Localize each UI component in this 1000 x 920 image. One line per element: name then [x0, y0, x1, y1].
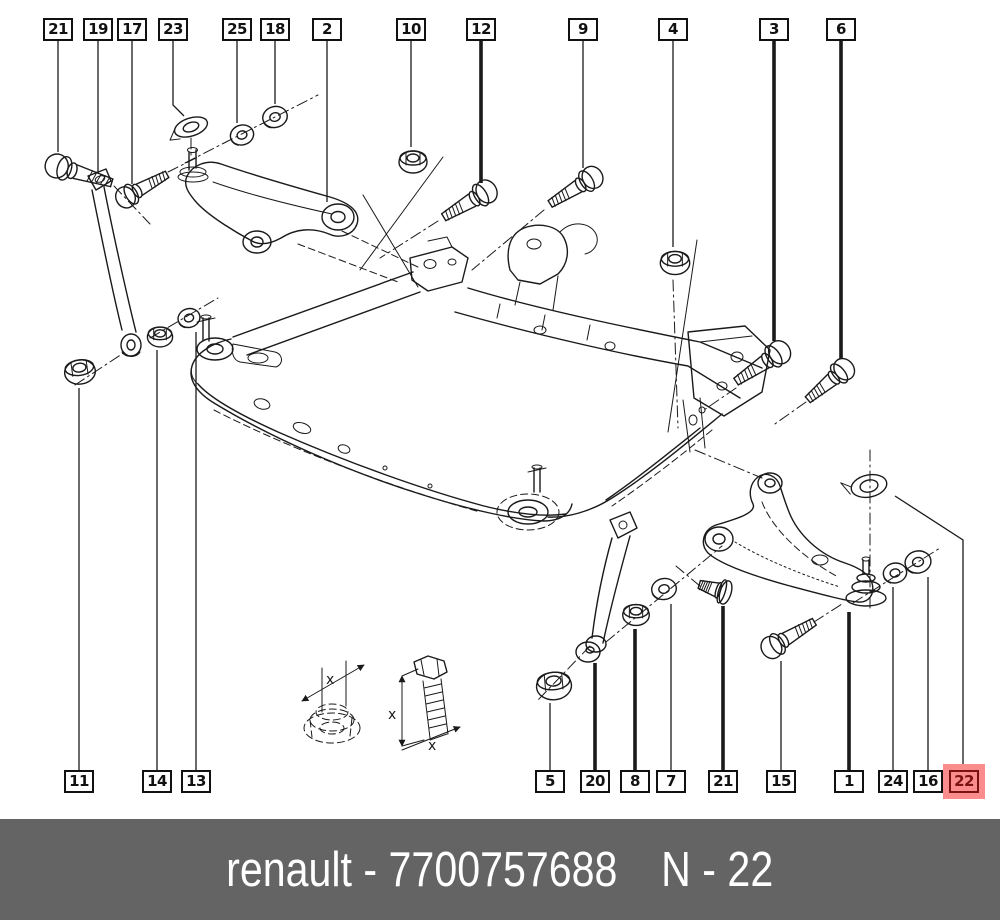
nut-8-part	[623, 605, 650, 626]
washer-16-part	[903, 549, 933, 576]
callout-top-18[interactable]: 18	[260, 18, 290, 41]
callout-bottom-24[interactable]: 24	[878, 770, 908, 793]
washer-25-part	[228, 122, 256, 147]
callout-bottom-5[interactable]: 5	[535, 770, 565, 793]
bolt-21-bottom-part	[696, 573, 735, 606]
tie-bar	[88, 169, 141, 357]
callout-bottom-14[interactable]: 14	[142, 770, 172, 793]
callout-top-3[interactable]: 3	[759, 18, 789, 41]
bolt-15-part	[757, 612, 820, 662]
footer-text: renault - 7700757688 N - 22	[226, 842, 773, 898]
callout-top-6[interactable]: 6	[826, 18, 856, 41]
parts-diagram-page: x x x	[0, 0, 1000, 920]
nut-10-part	[399, 151, 427, 173]
assembly-axes	[75, 95, 940, 700]
callout-top-4[interactable]: 4	[658, 18, 688, 41]
callout-top-25[interactable]: 25	[222, 18, 252, 41]
footer-part-reference: renault - 7700757688	[226, 842, 617, 898]
dimension-label-x: x	[428, 738, 436, 754]
washer-7-part	[650, 577, 678, 602]
callout-bottom-1[interactable]: 1	[834, 770, 864, 793]
dimension-label-x: x	[326, 672, 334, 688]
callout-bottom-15[interactable]: 15	[766, 770, 796, 793]
nut-4-part	[660, 251, 689, 274]
callout-bottom-11[interactable]: 11	[64, 770, 94, 793]
callout-top-17[interactable]: 17	[117, 18, 147, 41]
callout-bottom-20[interactable]: 20	[580, 770, 610, 793]
washer-13-part	[176, 306, 202, 330]
bolt-9-part	[544, 162, 607, 213]
leader-line-bottom-22	[895, 496, 963, 770]
plate-23-part	[165, 113, 210, 143]
callout-top-21[interactable]: 21	[43, 18, 73, 41]
leader-lines	[58, 40, 963, 770]
bolt-17-part	[112, 165, 172, 212]
callout-top-23[interactable]: 23	[158, 18, 188, 41]
subframe	[191, 224, 770, 530]
lower-control-arm	[703, 473, 886, 606]
nut-dimension-inset: x	[302, 661, 364, 743]
stabilizer-link	[576, 512, 637, 662]
dimension-label-x: x	[388, 707, 396, 723]
callout-bottom-13[interactable]: 13	[181, 770, 211, 793]
callout-top-9[interactable]: 9	[568, 18, 598, 41]
bolt-12-part	[438, 176, 502, 227]
fasteners	[42, 104, 933, 702]
washer-24-part	[881, 561, 908, 585]
upper-control-arm	[178, 148, 358, 254]
callout-bottom-16[interactable]: 16	[913, 770, 943, 793]
bolt-3-part	[729, 336, 795, 391]
leader-line-top-23	[173, 40, 184, 116]
footer-bar: renault - 7700757688 N - 22	[0, 819, 1000, 920]
callout-top-19[interactable]: 19	[83, 18, 113, 41]
callout-bottom-7[interactable]: 7	[656, 770, 686, 793]
callout-bottom-22[interactable]: 22	[949, 770, 979, 793]
callout-bottom-8[interactable]: 8	[620, 770, 650, 793]
plate-22-part	[840, 471, 889, 502]
bolt-6-part	[800, 354, 858, 408]
callout-top-2[interactable]: 2	[312, 18, 342, 41]
callout-bottom-21[interactable]: 21	[708, 770, 738, 793]
bolt-dimension-inset: x x	[388, 656, 460, 754]
dimension-insets: x x x	[302, 656, 460, 754]
callout-top-10[interactable]: 10	[396, 18, 426, 41]
callout-top-12[interactable]: 12	[466, 18, 496, 41]
footer-page-code: N - 22	[661, 842, 773, 898]
